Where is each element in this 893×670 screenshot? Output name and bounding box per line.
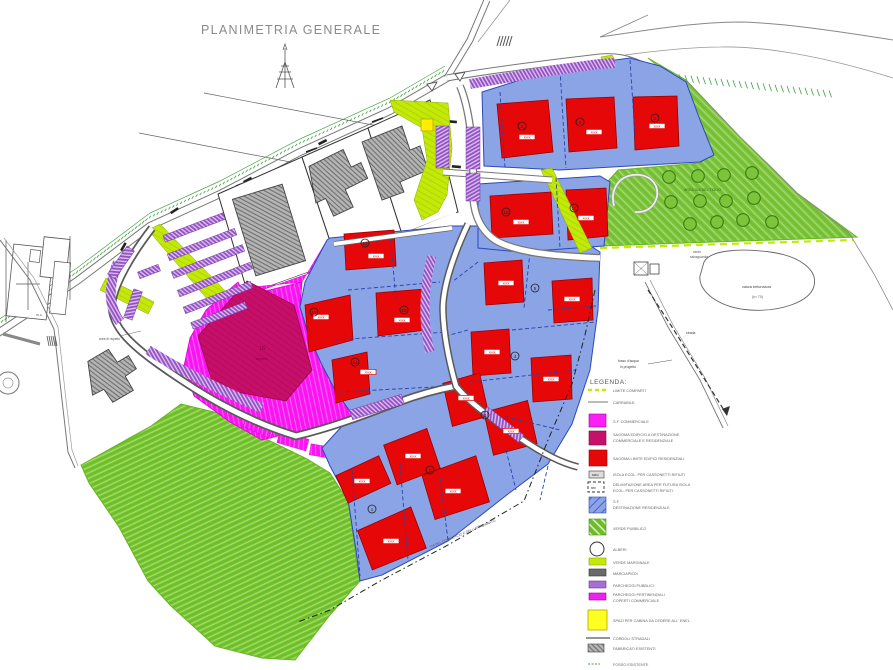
svg-text:salvaguardia: salvaguardia bbox=[690, 255, 708, 259]
svg-text:FOSSO ESISTENTE: FOSSO ESISTENTE bbox=[613, 663, 649, 667]
svg-text:PLANIMETRIA GENERALE: PLANIMETRIA GENERALE bbox=[201, 23, 381, 37]
svg-text:verde: verde bbox=[693, 250, 701, 254]
svg-text:xxxx: xxxx bbox=[463, 397, 470, 401]
svg-text:xxxx: xxxx bbox=[654, 125, 661, 129]
svg-text:COMMERCIALE E RESIDENZIALE: COMMERCIALE E RESIDENZIALE bbox=[613, 439, 674, 443]
svg-text:xxxx: xxxx bbox=[365, 371, 372, 375]
svg-text:10: 10 bbox=[503, 210, 509, 215]
svg-text:xxxx: xxxx bbox=[399, 319, 406, 323]
svg-text:S.F. COMMERCIALE: S.F. COMMERCIALE bbox=[613, 420, 649, 424]
svg-text:xxxx: xxxx bbox=[388, 540, 395, 544]
svg-text:area di rispetto: area di rispetto bbox=[99, 337, 120, 341]
svg-text:(h= 70): (h= 70) bbox=[752, 295, 763, 299]
svg-text:16: 16 bbox=[401, 308, 407, 313]
svg-text:14: 14 bbox=[352, 360, 358, 365]
svg-text:SAGOMA LIMITE EDIFICI RESID: SAGOMA LIMITE EDIFICI RESIDENZIALI bbox=[613, 457, 684, 461]
svg-text:xxxx: xxxx bbox=[450, 490, 457, 494]
svg-text:xxxx: xxxx bbox=[583, 217, 590, 221]
svg-text:in progetto: in progetto bbox=[620, 365, 636, 369]
svg-text:xxxx: xxxx bbox=[318, 316, 325, 320]
svg-text:superm.: superm. bbox=[256, 357, 269, 361]
svg-text:xxxx: xxxx bbox=[518, 221, 525, 225]
svg-text:888: 888 bbox=[591, 486, 596, 490]
svg-text:MBM: MBM bbox=[592, 473, 599, 477]
svg-text:16: 16 bbox=[259, 346, 265, 352]
svg-text:SPAZI PER CABINA DA CEDERE: SPAZI PER CABINA DA CEDERE ALL' ENEL bbox=[613, 619, 690, 623]
svg-text:VERDE MARGINALE: VERDE MARGINALE bbox=[613, 561, 650, 565]
svg-text:xxxx: xxxx bbox=[503, 282, 510, 286]
svg-text:COPERTI COMMERCIALE: COPERTI COMMERCIALE bbox=[613, 599, 660, 603]
svg-text:LEGENDA:: LEGENDA: bbox=[590, 379, 627, 386]
svg-text:ISOLA ECOL. PER CASSONETTI: ISOLA ECOL. PER CASSONETTI RIFIUTI bbox=[613, 473, 685, 477]
svg-text:11: 11 bbox=[572, 206, 577, 211]
svg-text:SAGOMA EDIFICIO A DESTINAZI: SAGOMA EDIFICIO A DESTINAZIONE bbox=[613, 433, 680, 437]
svg-text:CORDOLI STRADALI: CORDOLI STRADALI bbox=[613, 637, 650, 641]
svg-text:12: 12 bbox=[362, 241, 368, 246]
svg-text:xxxx: xxxx bbox=[359, 480, 366, 484]
svg-text:DESTINAZIONE RESIDENZIALE: DESTINAZIONE RESIDENZIALE bbox=[613, 506, 670, 510]
svg-text:FABBRICATI ESISTENTI: FABBRICATI ESISTENTI bbox=[613, 647, 656, 651]
svg-text:VERDE PUBBLICO: VERDE PUBBLICO bbox=[613, 527, 646, 531]
svg-text:vasca betonatura: vasca betonatura bbox=[742, 285, 772, 289]
svg-text:xxxx: xxxx bbox=[373, 255, 380, 259]
svg-text:CARRABILE: CARRABILE bbox=[613, 401, 635, 405]
svg-text:ALBERI: ALBERI bbox=[613, 548, 627, 552]
svg-text:xxxx: xxxx bbox=[489, 351, 496, 355]
svg-text:AREA GIA DEL TIGLIO: AREA GIA DEL TIGLIO bbox=[684, 188, 721, 192]
svg-text:DELIMITAZIONE AREA PER FUTU: DELIMITAZIONE AREA PER FUTURA ISOLA bbox=[613, 483, 691, 487]
svg-text:xxxx: xxxx bbox=[569, 298, 576, 302]
svg-text:PARCHEGGI PUBBLICI: PARCHEGGI PUBBLICI bbox=[613, 584, 654, 588]
svg-text:fosso d'acqua: fosso d'acqua bbox=[618, 359, 639, 363]
svg-text:xxxx: xxxx bbox=[548, 378, 555, 382]
svg-text:LIMITE COMPARTI: LIMITE COMPARTI bbox=[613, 389, 646, 393]
svg-text:S.F.: S.F. bbox=[613, 500, 620, 504]
svg-text:MARCIAPIEDI: MARCIAPIEDI bbox=[613, 572, 638, 576]
svg-text:xxxx: xxxx bbox=[524, 136, 531, 140]
svg-text:xxxx: xxxx bbox=[410, 455, 417, 459]
svg-text:xxxx: xxxx bbox=[508, 430, 515, 434]
svg-text:ECOL. PER CASSONETTI RIFIUT: ECOL. PER CASSONETTI RIFIUTI bbox=[613, 489, 673, 493]
svg-text:strada: strada bbox=[686, 331, 696, 335]
svg-text:m.c.: m.c. bbox=[36, 313, 43, 317]
svg-text:13: 13 bbox=[311, 310, 317, 315]
svg-text:xxxx: xxxx bbox=[591, 131, 598, 135]
svg-text:PARCHEGGI PERTINENZIALI: PARCHEGGI PERTINENZIALI bbox=[613, 593, 665, 597]
